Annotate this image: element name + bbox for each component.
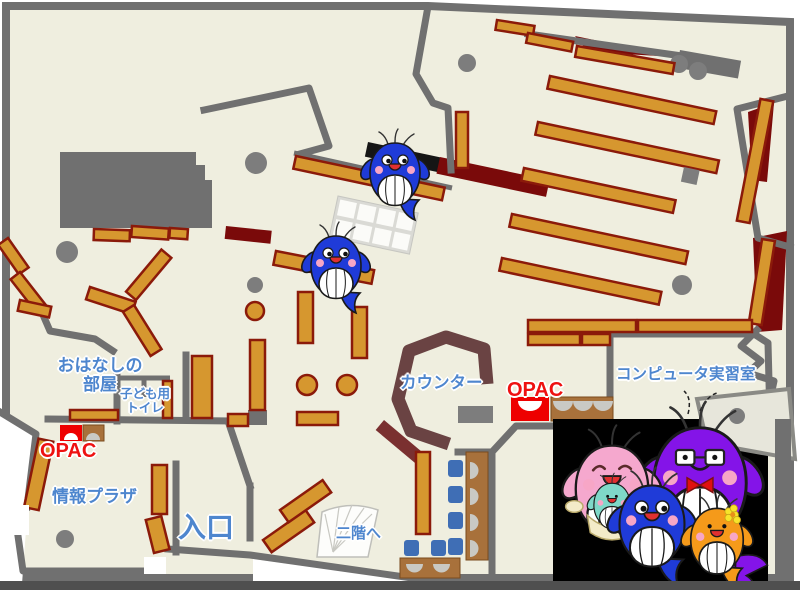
info-plaza-label: 情報プラザ (52, 487, 137, 506)
door-gap-west (13, 505, 29, 535)
opac-left-label: OPAC (40, 440, 96, 462)
kids-toilet-label: 子ども用 トイレ (115, 387, 175, 415)
door-gap-south (144, 557, 166, 574)
library-floor-map: おはなしの 部屋 子ども用 トイレ OPAC 情報プラザ 入口 カウンター OP… (0, 0, 800, 590)
computer-room-label: コンピュータ実習室 (616, 366, 756, 383)
storytelling-room-label-line2: 部屋 (83, 375, 117, 394)
right-wall (775, 419, 791, 582)
mascot-photo (553, 389, 795, 590)
entrance-label: 入口 (178, 512, 234, 543)
opac-left-terminals (60, 425, 104, 441)
opac-right-label: OPAC (507, 379, 563, 401)
storytelling-room-label-line1: おはなしの (58, 356, 143, 375)
counter-label: カウンター (400, 374, 483, 392)
kids-toilet-label-line2: トイレ (126, 401, 164, 415)
bottom-wall (0, 581, 800, 590)
kids-toilet-label-line1: 子ども用 (120, 387, 170, 401)
second-floor-label: 二階へ (336, 526, 381, 543)
